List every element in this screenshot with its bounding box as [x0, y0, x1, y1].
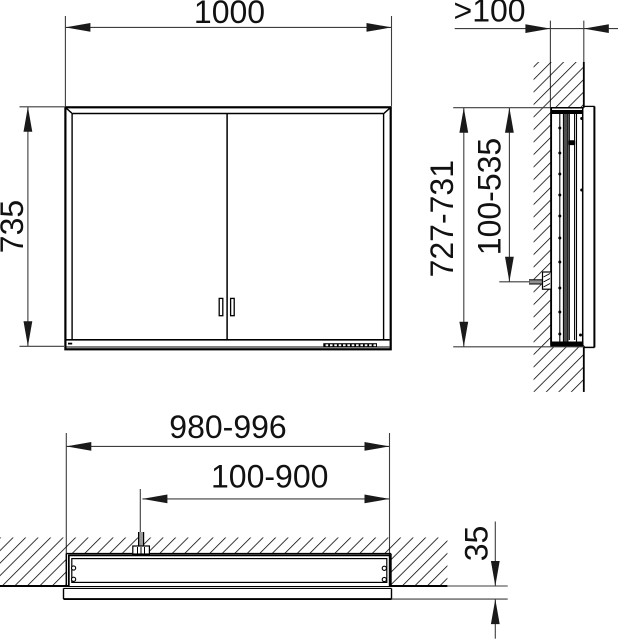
svg-text:727-731: 727-731 — [424, 160, 460, 277]
svg-text:100-535: 100-535 — [472, 138, 508, 255]
svg-text:1000: 1000 — [194, 0, 265, 30]
svg-text:100-900: 100-900 — [211, 459, 328, 495]
svg-text:35: 35 — [459, 526, 495, 562]
svg-text:>100: >100 — [454, 0, 526, 29]
svg-text:735: 735 — [0, 200, 30, 253]
svg-text:980-996: 980-996 — [169, 409, 286, 445]
